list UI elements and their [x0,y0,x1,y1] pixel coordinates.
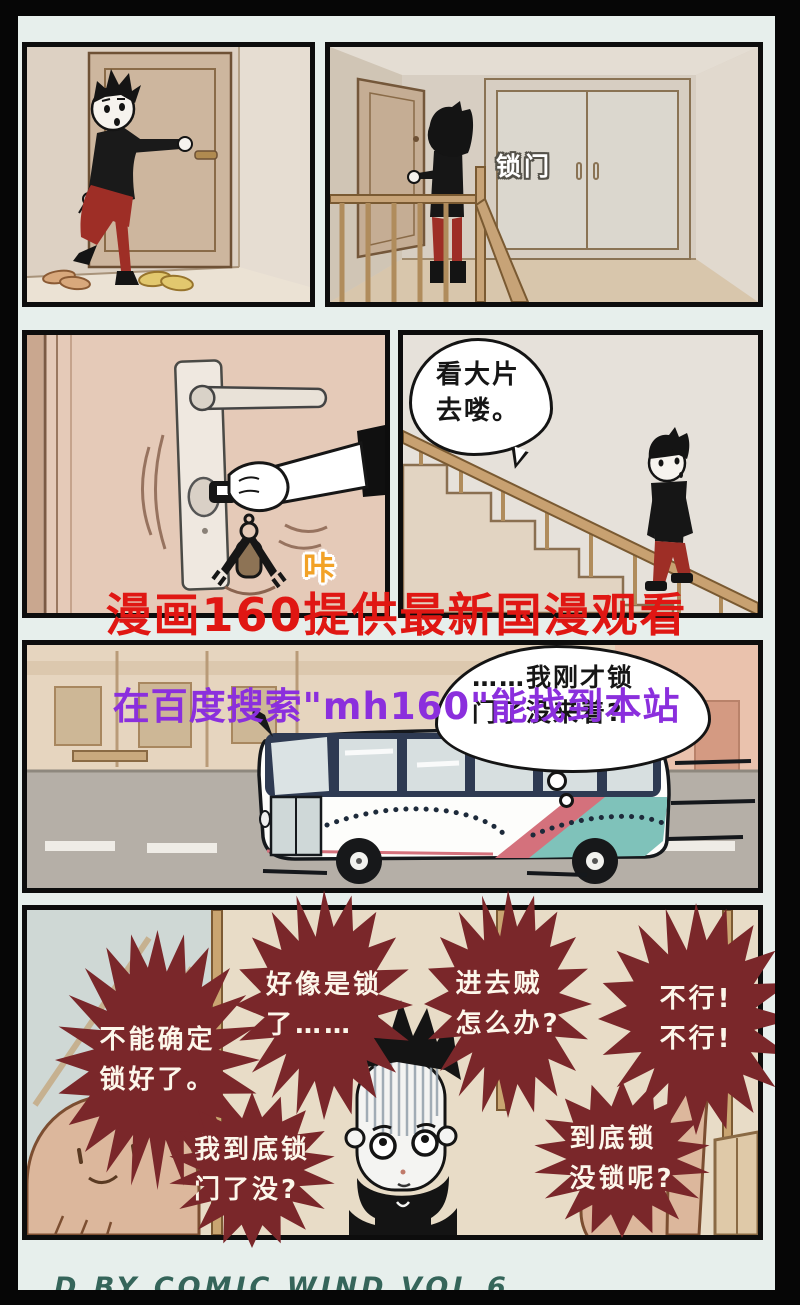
door-label: 锁门 [496,147,552,183]
footer-credit-text: D BY COMIC WIND VOL 6 [54,1272,510,1290]
spiky-bubble-5-text: 我到底锁门了没? [194,1130,310,1210]
thought-dot-small [559,793,574,808]
thought-dot-large [547,771,567,791]
spiky-bubble-1-text: 不能确定锁好了。 [99,1020,215,1100]
speech-text: 看大片 去喽。 [412,341,550,429]
panel-key-turn: 咔 [22,330,390,618]
comic-page: 锁门 [0,0,800,1305]
panel-push-door [22,42,315,307]
speech-bubble: 看大片 去喽。 [409,338,553,456]
spiky-bubble-6-text: 到底锁没锁呢? [569,1119,674,1199]
watermark-blue: 在百度搜索"mh160"能找到本站 [113,676,681,730]
panel-push-door-art [27,47,310,302]
spiky-bubble-4-text: 不行!不行! [660,979,733,1059]
spiky-bubble-3-text: 进去贼怎么办? [455,964,560,1044]
panel-lock-door: 锁门 [325,42,763,307]
comic-paper: 锁门 [18,16,775,1290]
panel-stairs: 看大片 去喽。 [398,330,763,618]
watermark-red: 漫画160提供最新国漫观看 [105,579,687,645]
spiky-bubble-2-text: 好像是锁了…… [266,965,382,1045]
